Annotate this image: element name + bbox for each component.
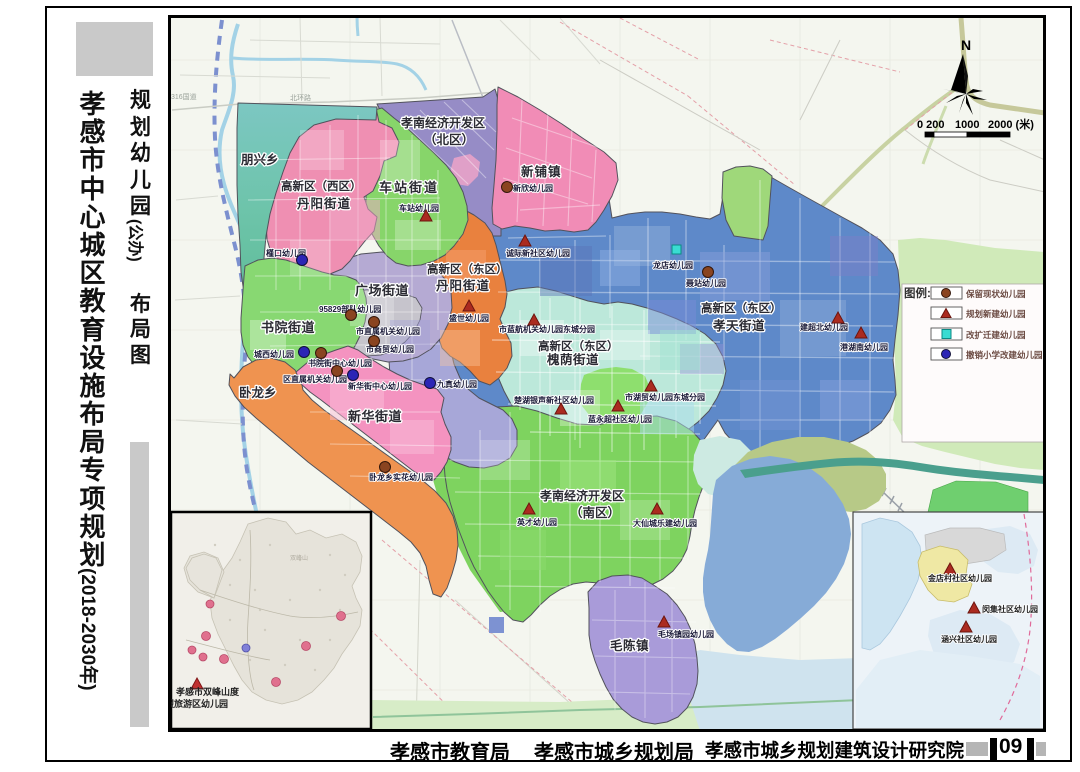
svg-text:卧龙乡: 卧龙乡 — [239, 385, 277, 400]
svg-text:1000: 1000 — [955, 119, 979, 131]
svg-text:高新区（西区）: 高新区（西区） — [281, 179, 362, 193]
svg-text:新华街中心幼儿园: 新华街中心幼儿园 — [348, 381, 412, 391]
svg-text:蓝永超社区幼儿园: 蓝永超社区幼儿园 — [588, 414, 652, 424]
svg-text:孝天街道: 孝天街道 — [712, 318, 765, 333]
svg-text:北环路: 北环路 — [290, 93, 311, 102]
svg-text:市直属机关幼儿园: 市直属机关幼儿园 — [356, 326, 420, 336]
svg-text:双峰山: 双峰山 — [290, 554, 308, 562]
svg-text:新欣幼儿园: 新欣幼儿园 — [513, 183, 553, 193]
svg-text:毛陈镇: 毛陈镇 — [610, 638, 649, 653]
svg-text:大仙城乐建幼儿园: 大仙城乐建幼儿园 — [633, 518, 697, 528]
svg-text:涵兴社区幼儿园: 涵兴社区幼儿园 — [941, 634, 997, 644]
svg-text:2000 (米): 2000 (米) — [988, 117, 1034, 131]
svg-text:卧龙乡实花幼儿园: 卧龙乡实花幼儿园 — [369, 472, 433, 482]
svg-text:市湖贸幼儿园东城分园: 市湖贸幼儿园东城分园 — [625, 392, 705, 402]
svg-text:高新区（东区）: 高新区（东区） — [538, 339, 619, 353]
svg-text:九真幼儿园: 九真幼儿园 — [436, 379, 477, 389]
svg-text:车站街道: 车站街道 — [379, 180, 439, 195]
svg-text:闵集社区幼儿园: 闵集社区幼儿园 — [982, 604, 1038, 614]
svg-text:丹阳街道: 丹阳街道 — [297, 196, 351, 211]
svg-text:（南区）: （南区） — [570, 505, 620, 520]
svg-text:丹阳街道: 丹阳街道 — [436, 278, 490, 293]
svg-text:改扩迁建幼儿园: 改扩迁建幼儿园 — [966, 330, 1026, 340]
svg-text:规划新建幼儿园: 规划新建幼儿园 — [966, 309, 1026, 319]
svg-text:聂站幼儿园: 聂站幼儿园 — [685, 278, 726, 288]
svg-text:英才幼儿园: 英才幼儿园 — [516, 517, 557, 527]
svg-text:盛世幼儿园: 盛世幼儿园 — [449, 313, 489, 323]
svg-text:孝南经济开发区: 孝南经济开发区 — [400, 115, 485, 130]
svg-text:朋兴乡: 朋兴乡 — [240, 152, 279, 167]
svg-text:市蓝航机关幼儿园东城分园: 市蓝航机关幼儿园东城分园 — [499, 324, 595, 334]
svg-text:龙店幼儿园: 龙店幼儿园 — [652, 260, 693, 270]
svg-text:孝感市双峰山度: 孝感市双峰山度 — [175, 686, 240, 697]
svg-text:新铺镇: 新铺镇 — [521, 164, 562, 179]
svg-text:假旅游区幼儿园: 假旅游区幼儿园 — [168, 698, 228, 709]
svg-text:撤销小学改建幼儿园: 撤销小学改建幼儿园 — [966, 350, 1043, 360]
svg-text:广场街道: 广场街道 — [355, 283, 409, 298]
svg-text:高新区（东区）: 高新区（东区） — [701, 301, 782, 315]
svg-text:保留现状幼儿园: 保留现状幼儿园 — [965, 289, 1026, 299]
svg-text:（北区）: （北区） — [424, 132, 474, 147]
svg-text:港湖南幼儿园: 港湖南幼儿园 — [840, 342, 888, 352]
svg-text:金店村社区幼儿园: 金店村社区幼儿园 — [927, 573, 992, 583]
svg-text:书院街道: 书院街道 — [261, 320, 315, 335]
svg-text:毛场镇园幼儿园: 毛场镇园幼儿园 — [658, 629, 714, 639]
svg-text:316国道: 316国道 — [171, 92, 197, 101]
svg-text:图例:: 图例: — [904, 286, 931, 300]
svg-text:0 200: 0 200 — [917, 119, 945, 131]
svg-text:城西幼儿园: 城西幼儿园 — [254, 349, 294, 359]
svg-text:车站幼儿园: 车站幼儿园 — [399, 203, 439, 213]
svg-text:高新区（东区）: 高新区（东区） — [427, 262, 508, 276]
svg-text:孝南经济开发区: 孝南经济开发区 — [539, 488, 624, 503]
svg-text:诚际新社区幼儿园: 诚际新社区幼儿园 — [506, 248, 570, 258]
svg-text:楚湖银声新社区幼儿园: 楚湖银声新社区幼儿园 — [513, 395, 594, 405]
svg-text:N: N — [961, 37, 971, 53]
svg-text:槐荫街道: 槐荫街道 — [546, 352, 599, 367]
svg-text:新华街道: 新华街道 — [348, 409, 402, 424]
